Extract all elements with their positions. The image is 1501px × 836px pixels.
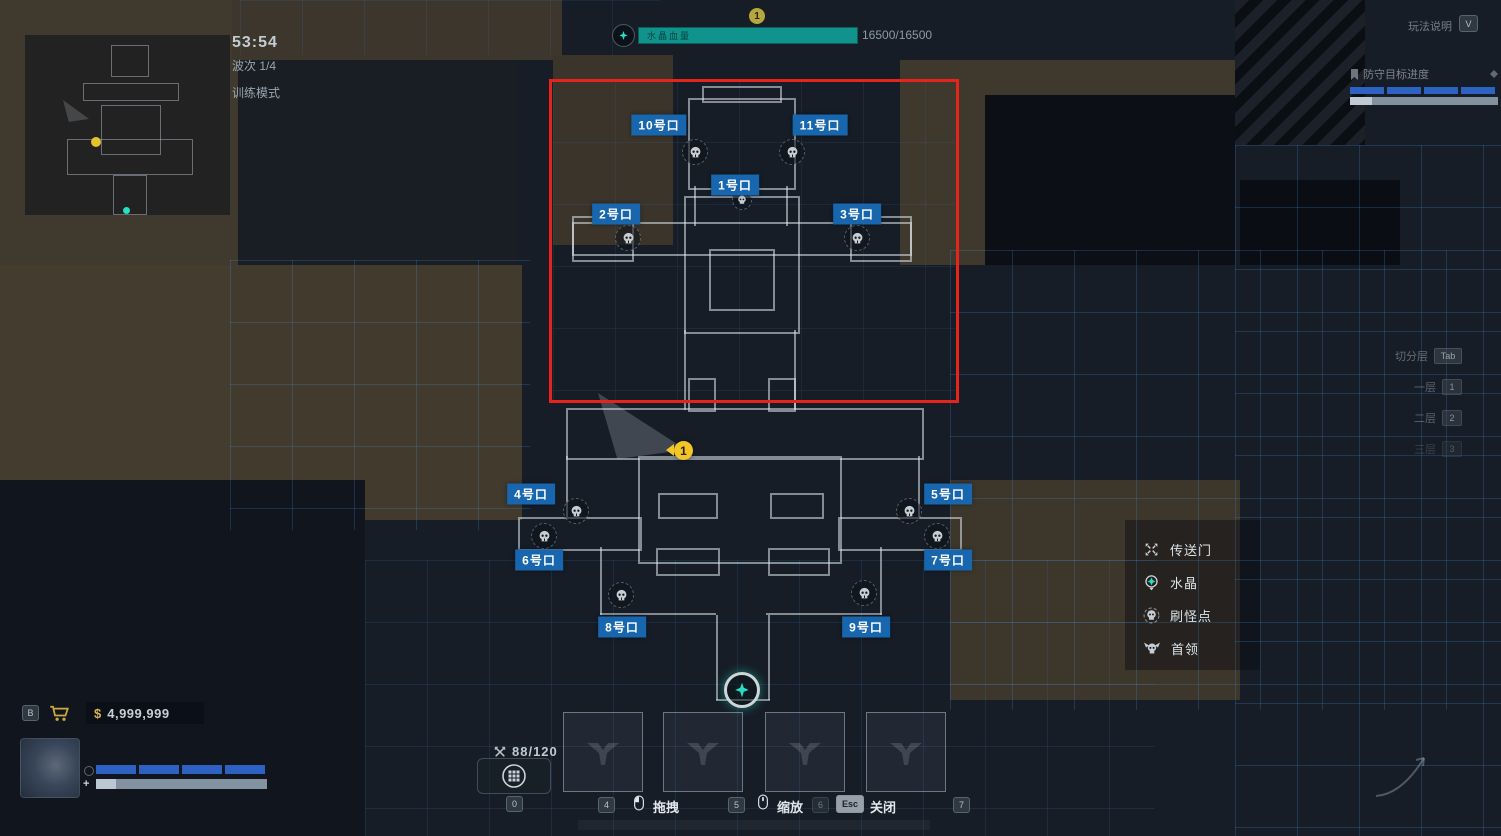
legend-item-crystal: 水晶 <box>1143 566 1212 599</box>
watermark-strip <box>578 820 930 830</box>
shop-key-badge: B <box>22 705 39 721</box>
map-wall <box>716 615 718 700</box>
turret-slot-3[interactable] <box>765 712 845 792</box>
top-marker-badge: 1 <box>749 8 765 24</box>
floor-item-2[interactable]: 二层 2 <box>1370 410 1462 426</box>
boss-icon <box>1143 640 1161 657</box>
objective-icon <box>1350 69 1359 80</box>
character-shield-bar <box>96 765 265 774</box>
slot-key-number: 7 <box>959 800 964 810</box>
player-marker-number: 1 <box>680 444 687 458</box>
gate-label-5: 5号口 <box>924 484 972 505</box>
floor-selector-tab-key: Tab <box>1434 348 1462 364</box>
minimap-room <box>111 45 149 77</box>
stamina-bar-icon: + <box>83 778 89 790</box>
crystal-hp-bar: 水晶血量 <box>638 27 858 44</box>
floor-item-key: 1 <box>1442 379 1462 395</box>
legend-label: 水晶 <box>1170 573 1198 592</box>
floor-selector-title-row[interactable]: 切分层 Tab <box>1370 348 1462 364</box>
map-legend: 传送门 水晶 刷怪点 首领 <box>1143 533 1212 665</box>
help-label[interactable]: 玩法说明 <box>1408 18 1452 34</box>
spawn-point-icon <box>851 580 877 606</box>
zoom-hint-label: 缩放 <box>777 797 803 816</box>
map-wall <box>656 548 720 576</box>
minimap-room <box>83 83 179 101</box>
floor-item-key: 2 <box>1442 410 1462 426</box>
legend-item-spawn: 刷怪点 <box>1143 599 1212 632</box>
minimap-room <box>113 175 147 215</box>
gate-label-8: 8号口 <box>598 617 646 638</box>
money-amount: 4,999,999 <box>107 706 169 721</box>
crystal-icon <box>1143 574 1160 591</box>
floor-item-label: 三层 <box>1414 441 1436 457</box>
mode-label: 训练模式 <box>232 84 280 101</box>
minimap-crystal-dot <box>123 207 130 214</box>
minimap-room <box>67 139 193 175</box>
turret-slot-1[interactable] <box>563 712 643 792</box>
floor-item-1[interactable]: 一层 1 <box>1370 379 1462 395</box>
legend-label: 传送门 <box>1170 540 1212 559</box>
top-marker-number: 1 <box>754 11 760 22</box>
turret-ghost-icon <box>884 730 928 774</box>
minimap <box>25 35 230 215</box>
build-grid-icon <box>501 763 527 789</box>
crystal-bar-icon <box>612 24 635 47</box>
objective-progress-bar <box>1350 87 1498 94</box>
shop-key-letter: B <box>27 708 33 718</box>
floor-item-label: 一层 <box>1414 379 1436 395</box>
floor-item-label: 二层 <box>1414 410 1436 426</box>
avatar <box>20 738 80 798</box>
gate-label-7: 7号口 <box>924 550 972 571</box>
turret-ghost-icon <box>681 730 725 774</box>
turret-slot-2[interactable] <box>663 712 743 792</box>
build-counter-value: 88/120 <box>512 744 558 759</box>
tools-icon <box>494 746 506 758</box>
slot-key-badge-6: 6 <box>812 797 829 813</box>
esc-key-label: Esc <box>842 799 858 809</box>
map-wall <box>770 493 824 519</box>
slot-key-number: 5 <box>734 800 739 810</box>
legend-item-boss: 首领 <box>1143 632 1212 665</box>
objective-panel: 防守目标进度 <box>1350 66 1498 105</box>
drag-hint-label: 拖拽 <box>653 797 679 816</box>
spawn-point-icon <box>563 498 589 524</box>
help-key-badge: V <box>1459 15 1478 32</box>
map-wall <box>768 615 770 700</box>
legend-label: 首领 <box>1171 639 1199 658</box>
legend-item-portal: 传送门 <box>1143 533 1212 566</box>
map-wall <box>658 493 718 519</box>
crystal-marker-icon <box>724 672 760 708</box>
turret-ghost-icon <box>783 730 827 774</box>
build-key-badge: 0 <box>506 796 523 812</box>
legend-label: 刷怪点 <box>1170 606 1212 625</box>
map-wall <box>600 613 716 615</box>
floor-item-key: 3 <box>1442 441 1462 457</box>
build-key-number: 0 <box>512 799 517 809</box>
highlight-rectangle <box>549 79 959 403</box>
slot-key-number: 6 <box>818 800 823 810</box>
portal-icon <box>1143 541 1160 558</box>
turret-slot-4[interactable] <box>866 712 946 792</box>
turret-ghost-icon <box>581 730 625 774</box>
gate-label-9: 9号口 <box>842 617 890 638</box>
spawn-point-icon <box>531 523 557 549</box>
objective-label: 防守目标进度 <box>1363 66 1429 82</box>
crystal-hp-value: 16500/16500 <box>862 28 932 42</box>
mouse-left-icon <box>633 795 645 811</box>
slot-key-badge-5: 5 <box>728 797 745 813</box>
close-hint-label: 关闭 <box>870 797 896 816</box>
map-wall <box>766 613 882 615</box>
shield-bar-icon <box>84 766 94 776</box>
objective-count-icon <box>1490 70 1498 78</box>
gate-label-6: 6号口 <box>515 550 563 571</box>
floor-selector-title: 切分层 <box>1395 348 1428 364</box>
minimap-vision-cone <box>63 100 89 122</box>
slot-key-number: 4 <box>604 800 609 810</box>
gate-label-4: 4号口 <box>507 484 555 505</box>
spawn-point-icon <box>924 523 950 549</box>
map-wall <box>600 547 602 615</box>
money-display: $ 4,999,999 <box>86 702 204 724</box>
mouse-wheel-icon <box>757 794 769 810</box>
build-counter: 88/120 <box>494 744 558 759</box>
slot-key-badge-4: 4 <box>598 797 615 813</box>
map-wall <box>880 547 882 615</box>
currency-symbol: $ <box>94 706 101 721</box>
map-wall <box>768 548 830 576</box>
player-marker-arrow <box>666 444 674 456</box>
crystal-hp-bar-label: 水晶血量 <box>647 29 691 42</box>
floor-item-3[interactable]: 三层 3 <box>1370 441 1462 457</box>
slot-key-badge-7: 7 <box>953 797 970 813</box>
objective-secondary-bar <box>1350 97 1498 105</box>
match-timer: 53:54 <box>232 34 278 52</box>
esc-key-badge: Esc <box>836 795 864 813</box>
player-marker: 1 <box>674 441 693 460</box>
help-key-letter: V <box>1465 19 1471 29</box>
minimap-player-dot <box>91 137 101 147</box>
cart-icon[interactable] <box>48 703 70 723</box>
compass-arrow-icon <box>1372 750 1432 802</box>
spawn-point-icon <box>608 582 634 608</box>
spawn-point-icon <box>896 498 922 524</box>
spawn-icon <box>1143 607 1160 624</box>
build-menu-button[interactable] <box>477 758 551 794</box>
wave-counter: 波次 1/4 <box>232 57 276 74</box>
character-stamina-bar <box>96 779 267 789</box>
